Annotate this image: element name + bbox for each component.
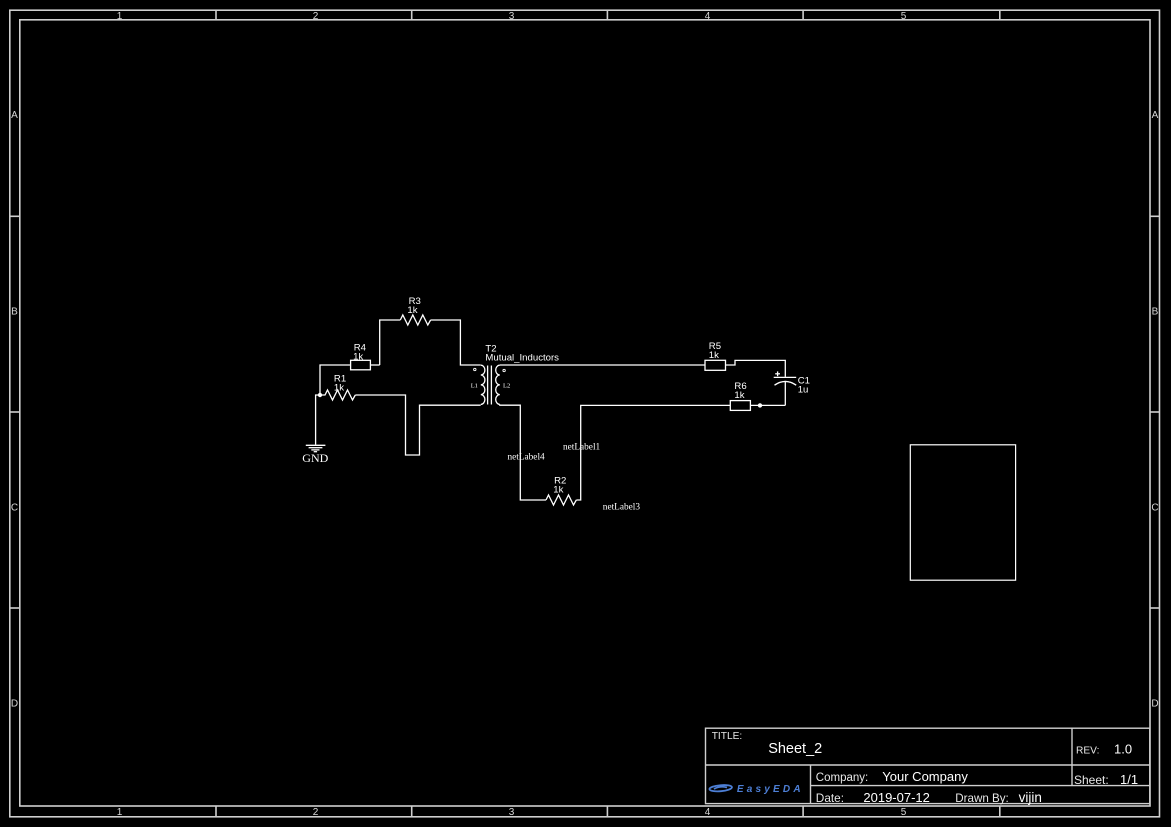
svg-text:Sheet:: Sheet: bbox=[1074, 773, 1109, 787]
svg-text:D: D bbox=[11, 699, 18, 710]
svg-text:Company:: Company: bbox=[816, 772, 868, 784]
svg-text:5: 5 bbox=[901, 807, 907, 818]
svg-text:Your Company: Your Company bbox=[882, 769, 968, 784]
svg-text:1k: 1k bbox=[709, 350, 719, 361]
svg-text:2: 2 bbox=[313, 807, 319, 818]
svg-text:1: 1 bbox=[117, 807, 123, 818]
svg-text:1: 1 bbox=[117, 11, 123, 22]
svg-text:3: 3 bbox=[509, 807, 515, 818]
svg-text:vijin: vijin bbox=[1019, 790, 1042, 805]
svg-text:1k: 1k bbox=[334, 382, 344, 393]
svg-text:Mutual_Inductors: Mutual_Inductors bbox=[485, 353, 559, 364]
svg-text:EasyEDA: EasyEDA bbox=[737, 784, 804, 795]
svg-text:Date:: Date: bbox=[816, 791, 844, 805]
svg-text:C: C bbox=[1151, 503, 1158, 514]
svg-text:4: 4 bbox=[705, 807, 711, 818]
svg-text:Drawn By:: Drawn By: bbox=[955, 792, 1008, 805]
svg-text:1k: 1k bbox=[407, 305, 417, 316]
svg-text:1u: 1u bbox=[798, 385, 809, 396]
svg-text:4: 4 bbox=[705, 11, 711, 22]
svg-text:netLabel4: netLabel4 bbox=[508, 452, 546, 462]
svg-text:1k: 1k bbox=[353, 352, 363, 363]
svg-text:B: B bbox=[11, 307, 18, 318]
svg-text:A: A bbox=[1152, 110, 1159, 121]
svg-text:A: A bbox=[11, 110, 18, 121]
svg-text:1.0: 1.0 bbox=[1114, 742, 1132, 757]
svg-text:netLabel1: netLabel1 bbox=[563, 443, 601, 453]
svg-text:D: D bbox=[1151, 699, 1158, 710]
svg-text:Sheet_2: Sheet_2 bbox=[768, 741, 822, 757]
svg-text:TITLE:: TITLE: bbox=[712, 731, 743, 742]
svg-text:REV:: REV: bbox=[1076, 746, 1099, 757]
svg-text:netLabel3: netLabel3 bbox=[603, 503, 641, 513]
svg-text:2: 2 bbox=[313, 11, 319, 22]
svg-text:2019-07-12: 2019-07-12 bbox=[863, 790, 930, 805]
svg-text:L2: L2 bbox=[503, 382, 510, 389]
svg-text:L1: L1 bbox=[471, 382, 478, 389]
svg-text:1k: 1k bbox=[734, 390, 744, 401]
svg-text:3: 3 bbox=[509, 11, 515, 22]
svg-text:1k: 1k bbox=[553, 485, 563, 496]
svg-text:B: B bbox=[1152, 307, 1159, 318]
svg-text:1/1: 1/1 bbox=[1120, 772, 1138, 787]
svg-text:C: C bbox=[11, 503, 18, 514]
svg-text:5: 5 bbox=[901, 11, 907, 22]
svg-text:GND: GND bbox=[302, 451, 328, 465]
